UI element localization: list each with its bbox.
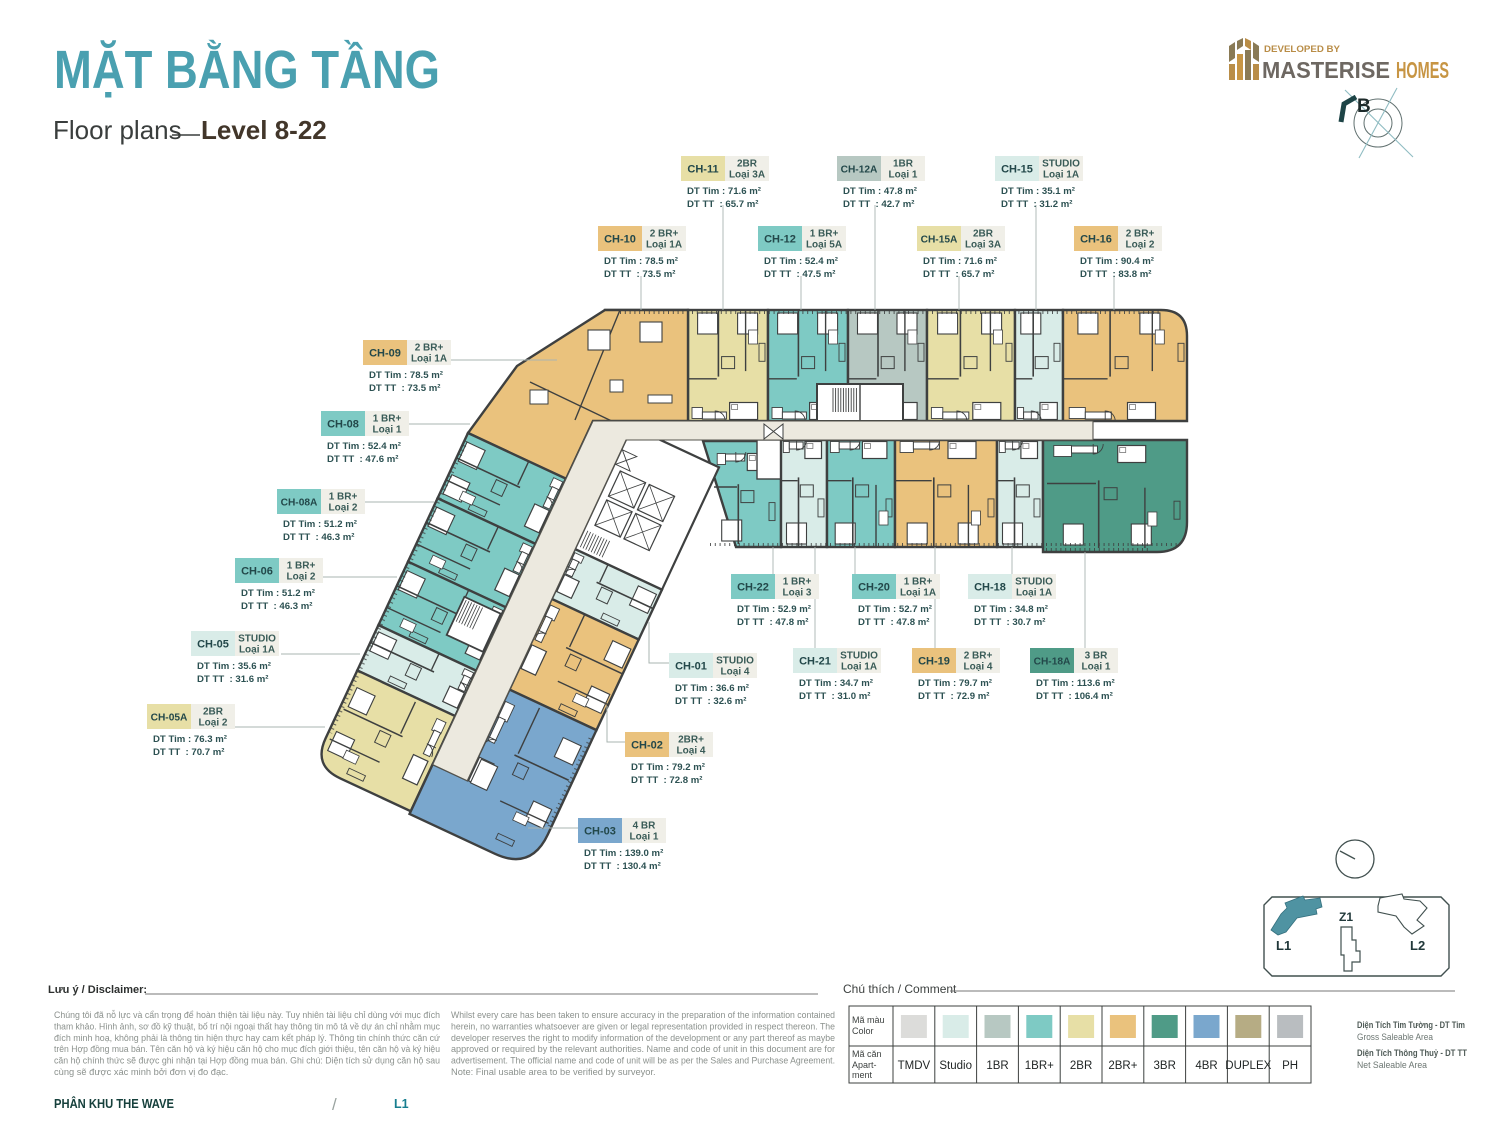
svg-text:CH-08: CH-08 xyxy=(327,419,359,431)
svg-text:TMDV: TMDV xyxy=(898,1060,931,1072)
svg-text:1BR: 1BR xyxy=(986,1060,1008,1072)
svg-text:DT TT : 73.5 m²: DT TT : 73.5 m² xyxy=(369,383,440,394)
svg-text:B: B xyxy=(1357,96,1371,117)
svg-text:DT TT : 42.7 m²: DT TT : 42.7 m² xyxy=(843,199,914,210)
svg-text:2BR: 2BR xyxy=(737,159,758,170)
svg-text:DT TT : 65.7 m²: DT TT : 65.7 m² xyxy=(687,199,758,210)
svg-text:DT TT : 70.7 m²: DT TT : 70.7 m² xyxy=(153,747,224,758)
svg-text:DT TT : 32.6 m²: DT TT : 32.6 m² xyxy=(675,696,746,707)
svg-text:DT TT : 130.4 m²: DT TT : 130.4 m² xyxy=(584,861,661,872)
svg-text:STUDIO: STUDIO xyxy=(1015,577,1053,588)
svg-text:DT Tim : 139.0 m²: DT Tim : 139.0 m² xyxy=(584,848,663,859)
svg-text:Mã màu: Mã màu xyxy=(852,1015,885,1025)
svg-text:CH-05: CH-05 xyxy=(197,639,229,651)
svg-text:Diện Tích Tim Tường - DT Tim: Diện Tích Tim Tường - DT Tim xyxy=(1357,1020,1465,1031)
svg-text:trên Hợp đồng mua bán. Tên căn: trên Hợp đồng mua bán. Tên căn hộ và ký … xyxy=(54,1044,440,1054)
svg-text:2BR: 2BR xyxy=(973,229,994,240)
svg-text:CH-11: CH-11 xyxy=(687,164,718,176)
svg-text:DT Tim : 79.7 m²: DT Tim : 79.7 m² xyxy=(918,678,992,689)
svg-text:DT Tim : 52.4 m²: DT Tim : 52.4 m² xyxy=(327,441,401,452)
svg-text:Loại 4: Loại 4 xyxy=(721,667,750,678)
svg-text:cùng sẽ được xác minh bởi đơn: cùng sẽ được xác minh bởi đơn vị đo đạc. xyxy=(54,1067,228,1077)
svg-text:1 BR+: 1 BR+ xyxy=(783,577,812,588)
svg-text:Loại 1A: Loại 1A xyxy=(239,645,275,656)
svg-text:1 BR+: 1 BR+ xyxy=(810,229,839,240)
svg-text:Loại 5A: Loại 5A xyxy=(806,240,842,251)
svg-text:1 BR+: 1 BR+ xyxy=(373,414,402,425)
svg-text:Loại 2: Loại 2 xyxy=(199,718,228,729)
svg-text:Apart-: Apart- xyxy=(852,1060,877,1070)
svg-text:CH-05A: CH-05A xyxy=(151,713,188,724)
svg-text:DT TT : 73.5 m²: DT TT : 73.5 m² xyxy=(604,269,675,280)
svg-text:CH-10: CH-10 xyxy=(604,234,636,246)
svg-text:Gross Saleable Area: Gross Saleable Area xyxy=(1357,1032,1434,1043)
svg-text:PH: PH xyxy=(1282,1060,1298,1072)
svg-text:DT TT : 83.8 m²: DT TT : 83.8 m² xyxy=(1080,269,1151,280)
svg-text:CH-09: CH-09 xyxy=(369,348,401,360)
svg-text:Loại 1A: Loại 1A xyxy=(1016,588,1052,599)
svg-text:DT Tim : 78.5 m²: DT Tim : 78.5 m² xyxy=(369,370,443,381)
svg-text:Chúng tôi đã nỗ lực và cẩn trọ: Chúng tôi đã nỗ lực và cẩn trọng để hoàn… xyxy=(54,1010,440,1020)
svg-text:STUDIO: STUDIO xyxy=(1042,159,1080,170)
svg-text:3BR: 3BR xyxy=(1154,1060,1176,1072)
svg-text:DT Tim : 79.2 m²: DT Tim : 79.2 m² xyxy=(631,762,705,773)
svg-text:DUPLEX: DUPLEX xyxy=(1225,1060,1271,1072)
svg-text:Loại 2: Loại 2 xyxy=(1126,240,1155,251)
svg-text:1BR: 1BR xyxy=(893,159,914,170)
svg-text:DT TT : 47.8 m²: DT TT : 47.8 m² xyxy=(858,617,929,628)
svg-text:DEVELOPED BY: DEVELOPED BY xyxy=(1264,44,1341,55)
svg-text:DT TT : 31.2 m²: DT TT : 31.2 m² xyxy=(1001,199,1072,210)
svg-text:DT Tim : 71.6 m²: DT Tim : 71.6 m² xyxy=(923,256,997,267)
svg-text:2BR: 2BR xyxy=(1070,1060,1092,1072)
svg-text:advertisement. The official na: advertisement. The official name and cod… xyxy=(451,1056,835,1066)
svg-text:Chú thích / Comment: Chú thích / Comment xyxy=(843,982,957,996)
svg-text:DT Tim : 36.6 m²: DT Tim : 36.6 m² xyxy=(675,683,749,694)
svg-text:DT Tim : 51.2 m²: DT Tim : 51.2 m² xyxy=(283,519,357,530)
svg-text:Note: Final usable area to be: Note: Final usable area to be verified b… xyxy=(451,1067,656,1077)
svg-text:DT Tim : 76.3 m²: DT Tim : 76.3 m² xyxy=(153,734,227,745)
svg-text:Level 8-22: Level 8-22 xyxy=(201,115,327,145)
svg-text:L1: L1 xyxy=(1276,938,1291,953)
svg-text:4BR: 4BR xyxy=(1195,1060,1217,1072)
svg-text:PHÂN KHU THE WAVE: PHÂN KHU THE WAVE xyxy=(54,1096,174,1111)
svg-text:DT TT : 46.3 m²: DT TT : 46.3 m² xyxy=(283,532,354,543)
svg-text:Loại 3: Loại 3 xyxy=(783,588,812,599)
svg-text:L1: L1 xyxy=(394,1097,409,1111)
svg-text:Loại 3A: Loại 3A xyxy=(965,240,1001,251)
svg-text:Color: Color xyxy=(852,1026,874,1036)
svg-text:Whilst every care has been tak: Whilst every care has been taken to ensu… xyxy=(451,1010,835,1020)
svg-text:ment: ment xyxy=(852,1070,873,1080)
svg-text:Loại 1A: Loại 1A xyxy=(841,662,877,673)
svg-text:Loại 1: Loại 1 xyxy=(1082,662,1111,673)
svg-text:Loại 2: Loại 2 xyxy=(329,503,358,514)
svg-text:DT TT : 31.6 m²: DT TT : 31.6 m² xyxy=(197,674,268,685)
svg-text:DT Tim : 113.6 m²: DT Tim : 113.6 m² xyxy=(1036,678,1115,689)
svg-text:Net Saleable Area: Net Saleable Area xyxy=(1357,1060,1428,1071)
svg-text:Loại 4: Loại 4 xyxy=(677,746,706,757)
svg-text:2 BR+: 2 BR+ xyxy=(1126,229,1155,240)
svg-text:DT Tim : 78.5 m²: DT Tim : 78.5 m² xyxy=(604,256,678,267)
svg-text:Loại 1: Loại 1 xyxy=(373,425,402,436)
svg-text:Lưu ý / Disclaimer:: Lưu ý / Disclaimer: xyxy=(48,984,147,996)
svg-text:Loại 3A: Loại 3A xyxy=(729,170,765,181)
svg-text:STUDIO: STUDIO xyxy=(840,651,878,662)
svg-text:MASTERISE: MASTERISE xyxy=(1262,57,1390,83)
svg-text:1 BR+: 1 BR+ xyxy=(329,492,358,503)
svg-text:DT Tim : 52.9 m²: DT Tim : 52.9 m² xyxy=(737,604,811,615)
svg-text:DT TT : 106.4 m²: DT TT : 106.4 m² xyxy=(1036,691,1113,702)
svg-text:2 BR+: 2 BR+ xyxy=(650,229,679,240)
svg-text:DT TT : 72.9 m²: DT TT : 72.9 m² xyxy=(918,691,989,702)
svg-text:Loại 1: Loại 1 xyxy=(889,170,918,181)
svg-text:Loại 4: Loại 4 xyxy=(964,662,993,673)
svg-text:STUDIO: STUDIO xyxy=(716,656,754,667)
svg-text:Loại 1A: Loại 1A xyxy=(646,240,682,251)
svg-text:1BR+: 1BR+ xyxy=(1025,1060,1054,1072)
svg-text:DT Tim : 52.7 m²: DT Tim : 52.7 m² xyxy=(858,604,932,615)
svg-text:Floor plans: Floor plans xyxy=(53,115,182,145)
svg-text:2BR+: 2BR+ xyxy=(678,735,704,746)
svg-text:DT TT : 30.7 m²: DT TT : 30.7 m² xyxy=(974,617,1045,628)
svg-text:developer reserves the right t: developer reserves the right to modify i… xyxy=(451,1033,835,1043)
svg-text:DT Tim : 47.8 m²: DT Tim : 47.8 m² xyxy=(843,186,917,197)
svg-text:DT Tim : 35.6 m²: DT Tim : 35.6 m² xyxy=(197,661,271,672)
svg-text:2BR+: 2BR+ xyxy=(1108,1060,1137,1072)
svg-text:1 BR+: 1 BR+ xyxy=(904,577,933,588)
svg-text:2BR: 2BR xyxy=(203,707,224,718)
svg-text:DT TT : 65.7 m²: DT TT : 65.7 m² xyxy=(923,269,994,280)
svg-text:CH-15A: CH-15A xyxy=(921,235,958,246)
svg-text:STUDIO: STUDIO xyxy=(238,634,276,645)
svg-text:DT Tim : 52.4 m²: DT Tim : 52.4 m² xyxy=(764,256,838,267)
svg-text:DT TT : 31.0 m²: DT TT : 31.0 m² xyxy=(799,691,870,702)
svg-text:Loại 1: Loại 1 xyxy=(630,832,659,843)
svg-text:CH-03: CH-03 xyxy=(584,826,616,838)
svg-text:CH-18: CH-18 xyxy=(974,582,1006,594)
svg-text:đích minh hoạ, không phải là t: đích minh hoạ, không phải là thông tin h… xyxy=(54,1033,440,1043)
svg-text:CH-06: CH-06 xyxy=(241,566,273,578)
svg-text:/: / xyxy=(332,1095,337,1114)
svg-text:DT TT : 47.6 m²: DT TT : 47.6 m² xyxy=(327,454,398,465)
svg-text:DT Tim : 51.2 m²: DT Tim : 51.2 m² xyxy=(241,588,315,599)
svg-text:CH-22: CH-22 xyxy=(737,582,769,594)
svg-text:CH-01: CH-01 xyxy=(675,661,707,673)
svg-text:DT Tim : 35.1 m²: DT Tim : 35.1 m² xyxy=(1001,186,1075,197)
svg-text:CH-16: CH-16 xyxy=(1080,234,1112,246)
svg-text:Z1: Z1 xyxy=(1339,910,1353,924)
svg-text:CH-08A: CH-08A xyxy=(281,498,318,509)
svg-text:Loại 1A: Loại 1A xyxy=(900,588,936,599)
svg-text:1 BR+: 1 BR+ xyxy=(287,561,316,572)
svg-text:4 BR: 4 BR xyxy=(633,821,657,832)
svg-text:DT TT : 72.8 m²: DT TT : 72.8 m² xyxy=(631,775,702,786)
svg-text:tham khảo. Hình ảnh, sơ đồ kỹ: tham khảo. Hình ảnh, sơ đồ kỹ thuật, bố … xyxy=(54,1021,440,1031)
svg-text:DT Tim : 71.6 m²: DT Tim : 71.6 m² xyxy=(687,186,761,197)
svg-text:Diện Tích Thông Thuỷ - DT TT: Diện Tích Thông Thuỷ - DT TT xyxy=(1357,1048,1467,1059)
svg-text:DT Tim : 34.7 m²: DT Tim : 34.7 m² xyxy=(799,678,873,689)
svg-text:MẶT BẰNG TẦNG: MẶT BẰNG TẦNG xyxy=(54,40,440,100)
svg-text:DT Tim : 90.4 m²: DT Tim : 90.4 m² xyxy=(1080,256,1154,267)
svg-text:2 BR+: 2 BR+ xyxy=(415,343,444,354)
svg-text:3 BR: 3 BR xyxy=(1085,651,1109,662)
svg-text:L2: L2 xyxy=(1410,938,1425,953)
svg-text:CH-15: CH-15 xyxy=(1001,164,1033,176)
svg-text:Mã căn: Mã căn xyxy=(852,1049,882,1059)
svg-text:2 BR+: 2 BR+ xyxy=(964,651,993,662)
svg-text:CH-12: CH-12 xyxy=(764,234,796,246)
svg-text:CH-19: CH-19 xyxy=(918,656,950,668)
svg-text:CH-21: CH-21 xyxy=(799,656,831,668)
svg-text:herein, no warranties whatsoev: herein, no warranties whatsoever are giv… xyxy=(451,1021,835,1031)
svg-text:CH-12A: CH-12A xyxy=(841,165,878,176)
svg-text:DT TT : 47.5 m²: DT TT : 47.5 m² xyxy=(764,269,835,280)
svg-text:Loại 1A: Loại 1A xyxy=(411,354,447,365)
svg-text:CH-18A: CH-18A xyxy=(1034,657,1071,668)
svg-text:CH-20: CH-20 xyxy=(858,582,890,594)
svg-text:Loại 2: Loại 2 xyxy=(287,572,316,583)
svg-text:DT Tim : 34.8 m²: DT Tim : 34.8 m² xyxy=(974,604,1048,615)
svg-text:Loại 1A: Loại 1A xyxy=(1043,170,1079,181)
svg-text:approved or required by the re: approved or required by the relevant aut… xyxy=(451,1044,835,1054)
svg-text:CH-02: CH-02 xyxy=(631,740,663,752)
svg-text:DT TT : 47.8 m²: DT TT : 47.8 m² xyxy=(737,617,808,628)
svg-text:DT TT : 46.3 m²: DT TT : 46.3 m² xyxy=(241,601,312,612)
svg-text:HOMES: HOMES xyxy=(1396,57,1449,83)
svg-text:Studio: Studio xyxy=(939,1060,972,1072)
svg-text:căn hộ chính thức sẽ được ghi: căn hộ chính thức sẽ được ghi nhận tại H… xyxy=(54,1056,440,1066)
